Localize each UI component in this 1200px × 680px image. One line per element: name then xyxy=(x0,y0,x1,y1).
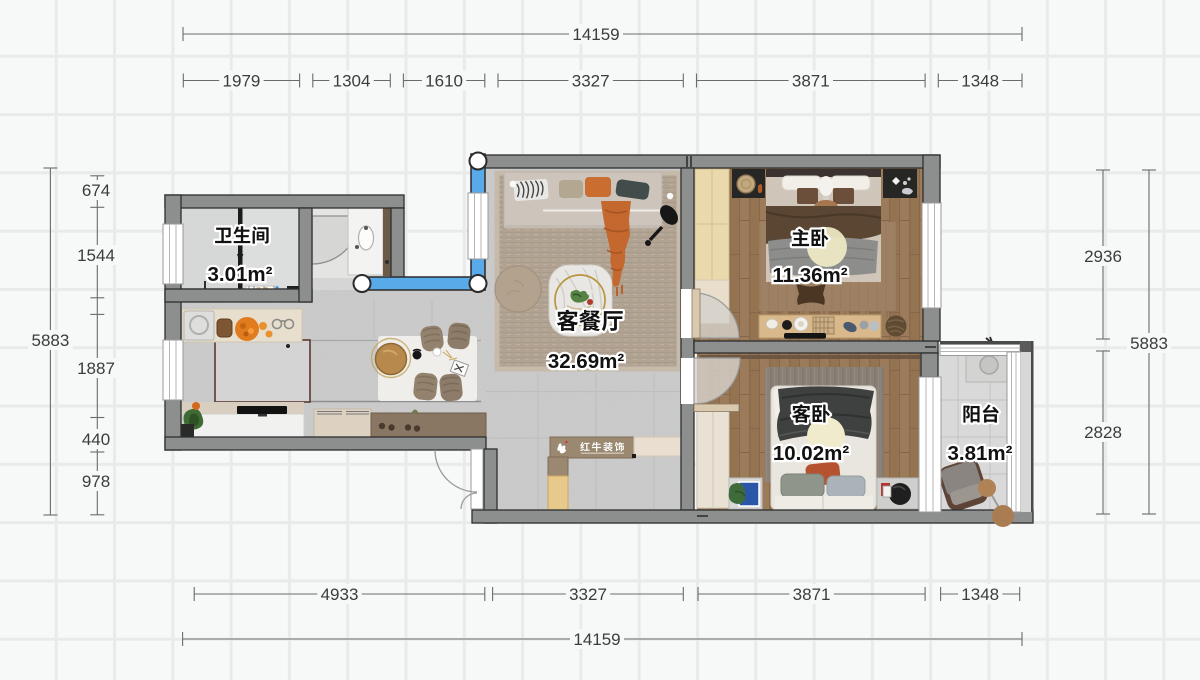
svg-text:1979: 1979 xyxy=(223,72,261,91)
svg-text:1544: 1544 xyxy=(77,246,115,265)
svg-text:3.01m²: 3.01m² xyxy=(208,263,273,286)
svg-text:674: 674 xyxy=(82,181,110,200)
svg-text:3871: 3871 xyxy=(793,585,831,604)
svg-text:3327: 3327 xyxy=(569,585,607,604)
svg-text:1610: 1610 xyxy=(425,72,463,91)
svg-text:1304: 1304 xyxy=(333,72,371,91)
svg-text:11.36m²: 11.36m² xyxy=(772,264,847,287)
svg-text:5883: 5883 xyxy=(1130,334,1168,353)
svg-text:3327: 3327 xyxy=(572,72,610,91)
svg-text:2828: 2828 xyxy=(1084,423,1122,442)
svg-text:14159: 14159 xyxy=(573,630,620,649)
svg-text:440: 440 xyxy=(82,430,110,449)
svg-text:14159: 14159 xyxy=(572,25,619,44)
svg-text:3871: 3871 xyxy=(792,72,830,91)
svg-text:1348: 1348 xyxy=(961,585,999,604)
svg-text:978: 978 xyxy=(82,472,110,491)
svg-text:5883: 5883 xyxy=(31,331,69,350)
svg-text:3.81m²: 3.81m² xyxy=(948,442,1013,465)
svg-text:4933: 4933 xyxy=(321,585,359,604)
svg-text:2936: 2936 xyxy=(1084,247,1122,266)
svg-text:1348: 1348 xyxy=(961,72,999,91)
svg-text:32.69m²: 32.69m² xyxy=(548,350,625,373)
svg-text:1887: 1887 xyxy=(77,359,115,378)
svg-text:10.02m²: 10.02m² xyxy=(773,442,850,465)
